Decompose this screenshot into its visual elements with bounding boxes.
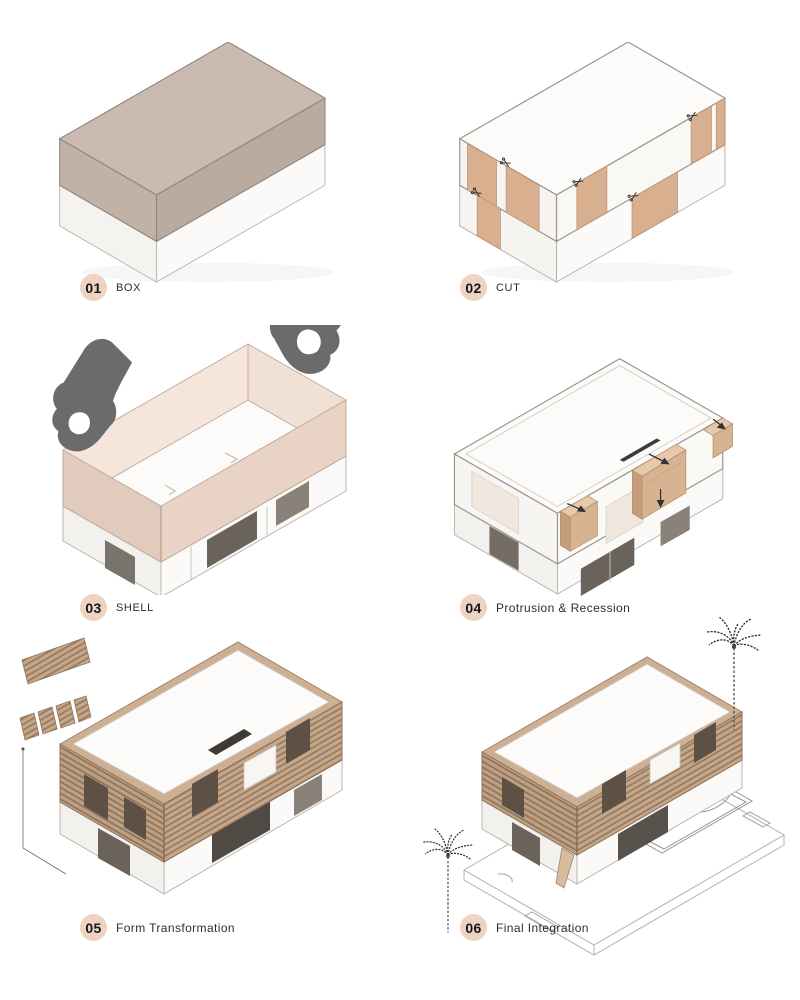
step-label-final-integration: 06 Final Integration [460, 914, 589, 941]
step-number-badge: 01 [80, 274, 107, 301]
step-label-shell: 03 SHELL [80, 594, 154, 621]
step-label-text: Form Transformation [116, 921, 235, 935]
form-transformation-illustration [12, 622, 402, 912]
step-label-text: Final Integration [496, 921, 589, 935]
cut-box-illustration [438, 42, 768, 284]
shell-illustration [15, 325, 385, 595]
step-label-text: CUT [496, 282, 520, 294]
step-label-box: 01 BOX [80, 274, 141, 301]
box-illustration [38, 42, 368, 284]
step-label-form-transformation: 05 Form Transformation [80, 914, 235, 941]
step-number-badge: 03 [80, 594, 107, 621]
step-label-protrusion-recession: 04 Protrusion & Recession [460, 594, 630, 621]
step-number-badge: 04 [460, 594, 487, 621]
step-number-badge: 02 [460, 274, 487, 301]
step-label-text: SHELL [116, 602, 154, 614]
step-label-cut: 02 CUT [460, 274, 520, 301]
step-label-text: Protrusion & Recession [496, 601, 630, 615]
step-label-text: BOX [116, 282, 141, 294]
step-number-badge: 05 [80, 914, 107, 941]
protrusion-recession-illustration [435, 345, 785, 598]
step-number-badge: 06 [460, 914, 487, 941]
